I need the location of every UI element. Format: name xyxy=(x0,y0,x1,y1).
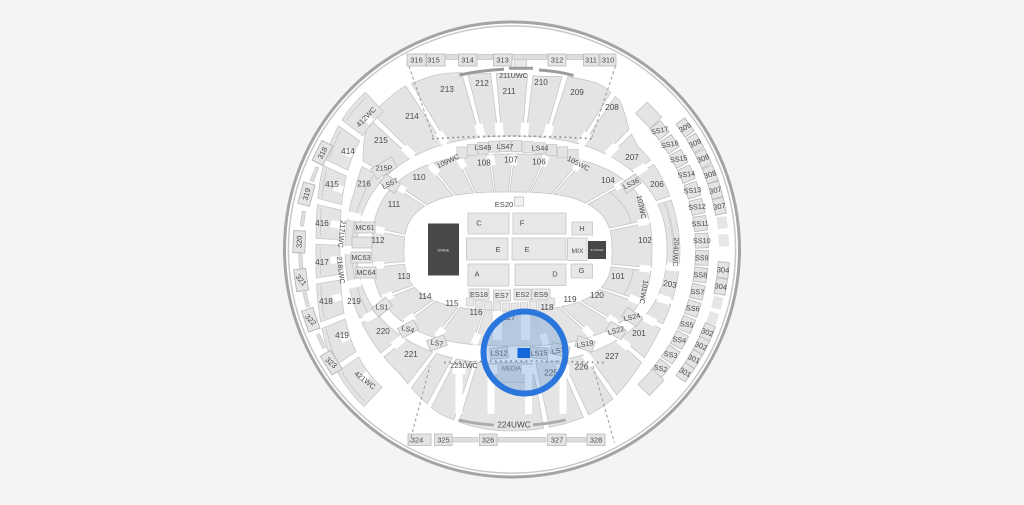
svg-text:221: 221 xyxy=(404,350,418,359)
svg-text:223LWC: 223LWC xyxy=(450,361,477,370)
svg-text:417: 417 xyxy=(315,258,329,267)
svg-text:118: 118 xyxy=(540,303,553,312)
svg-text:312: 312 xyxy=(551,56,564,65)
svg-text:414: 414 xyxy=(341,147,355,156)
svg-text:SS5: SS5 xyxy=(680,319,695,330)
svg-text:SS12: SS12 xyxy=(688,202,706,212)
svg-text:108: 108 xyxy=(477,158,491,167)
svg-text:211UWC: 211UWC xyxy=(499,71,528,80)
svg-text:114: 114 xyxy=(418,292,431,301)
svg-text:ES7: ES7 xyxy=(495,291,509,300)
svg-text:311: 311 xyxy=(585,56,597,65)
svg-text:209: 209 xyxy=(570,88,584,97)
svg-text:STAGE: STAGE xyxy=(438,248,451,252)
svg-text:110: 110 xyxy=(412,173,425,182)
svg-text:226: 226 xyxy=(575,362,589,371)
svg-text:304: 304 xyxy=(714,281,728,292)
svg-text:MC61: MC61 xyxy=(355,223,374,232)
svg-text:116: 116 xyxy=(469,308,482,317)
svg-text:212: 212 xyxy=(475,79,489,88)
svg-text:SS7: SS7 xyxy=(690,287,704,297)
svg-text:207: 207 xyxy=(625,153,639,162)
svg-text:G: G xyxy=(579,266,585,275)
svg-text:201: 201 xyxy=(632,329,646,338)
svg-text:328: 328 xyxy=(590,435,603,444)
svg-text:213: 213 xyxy=(440,85,454,94)
svg-text:204UWC: 204UWC xyxy=(671,237,681,266)
svg-text:SS8: SS8 xyxy=(693,270,707,280)
svg-text:MC63: MC63 xyxy=(351,253,370,262)
svg-text:107: 107 xyxy=(504,155,518,164)
svg-text:F: F xyxy=(520,219,525,228)
svg-text:304: 304 xyxy=(717,265,730,275)
svg-text:325: 325 xyxy=(437,435,450,444)
svg-text:ES20: ES20 xyxy=(495,200,514,209)
svg-text:324: 324 xyxy=(411,435,424,444)
svg-text:315: 315 xyxy=(427,56,440,65)
svg-text:120: 120 xyxy=(590,291,604,300)
svg-text:214: 214 xyxy=(405,112,419,121)
svg-text:310: 310 xyxy=(602,56,615,65)
svg-text:H: H xyxy=(579,224,584,233)
svg-text:113: 113 xyxy=(397,272,410,281)
svg-text:SS10: SS10 xyxy=(693,236,711,245)
svg-text:219: 219 xyxy=(347,297,361,306)
svg-text:LS1: LS1 xyxy=(376,303,389,312)
svg-text:LS44: LS44 xyxy=(532,144,549,153)
svg-text:ES2: ES2 xyxy=(516,290,530,299)
svg-text:216: 216 xyxy=(357,179,371,188)
svg-text:101: 101 xyxy=(611,272,625,281)
svg-text:MIX: MIX xyxy=(571,248,584,255)
svg-text:E: E xyxy=(524,245,529,254)
svg-text:211: 211 xyxy=(502,87,515,96)
svg-text:326: 326 xyxy=(482,435,495,444)
svg-text:208: 208 xyxy=(605,103,619,112)
svg-text:LS47: LS47 xyxy=(497,142,514,151)
svg-text:316: 316 xyxy=(410,56,423,65)
svg-text:106: 106 xyxy=(532,157,546,166)
svg-text:SS9: SS9 xyxy=(695,253,709,262)
svg-text:314: 314 xyxy=(461,56,474,65)
svg-text:227: 227 xyxy=(605,352,619,361)
svg-text:115: 115 xyxy=(445,299,458,308)
svg-text:215: 215 xyxy=(374,136,388,145)
svg-text:224UWC: 224UWC xyxy=(497,420,530,429)
svg-text:102: 102 xyxy=(638,236,652,245)
svg-text:MC64: MC64 xyxy=(356,268,375,277)
svg-text:SS13: SS13 xyxy=(683,185,701,196)
svg-text:206: 206 xyxy=(650,180,664,189)
svg-text:112: 112 xyxy=(371,236,384,245)
svg-text:LS49: LS49 xyxy=(475,143,492,152)
svg-text:A: A xyxy=(474,270,479,279)
svg-text:415: 415 xyxy=(325,180,339,189)
svg-text:416: 416 xyxy=(315,219,329,228)
svg-text:419: 419 xyxy=(335,331,349,340)
svg-text:E: E xyxy=(495,245,500,254)
svg-text:C: C xyxy=(476,219,482,228)
svg-text:320: 320 xyxy=(295,235,304,248)
svg-text:SS11: SS11 xyxy=(691,219,708,229)
svg-text:327: 327 xyxy=(551,435,564,444)
svg-text:215P: 215P xyxy=(376,164,393,173)
svg-text:D: D xyxy=(552,270,558,279)
svg-text:B STAGE: B STAGE xyxy=(591,248,604,252)
svg-text:SS6: SS6 xyxy=(686,303,700,313)
svg-text:210: 210 xyxy=(534,78,548,87)
svg-text:111: 111 xyxy=(388,200,401,209)
svg-text:313: 313 xyxy=(496,56,509,65)
svg-text:220: 220 xyxy=(376,327,390,336)
svg-text:ES9: ES9 xyxy=(534,290,548,299)
svg-text:418: 418 xyxy=(319,297,333,306)
svg-text:104: 104 xyxy=(601,176,615,185)
svg-text:119: 119 xyxy=(563,295,576,304)
